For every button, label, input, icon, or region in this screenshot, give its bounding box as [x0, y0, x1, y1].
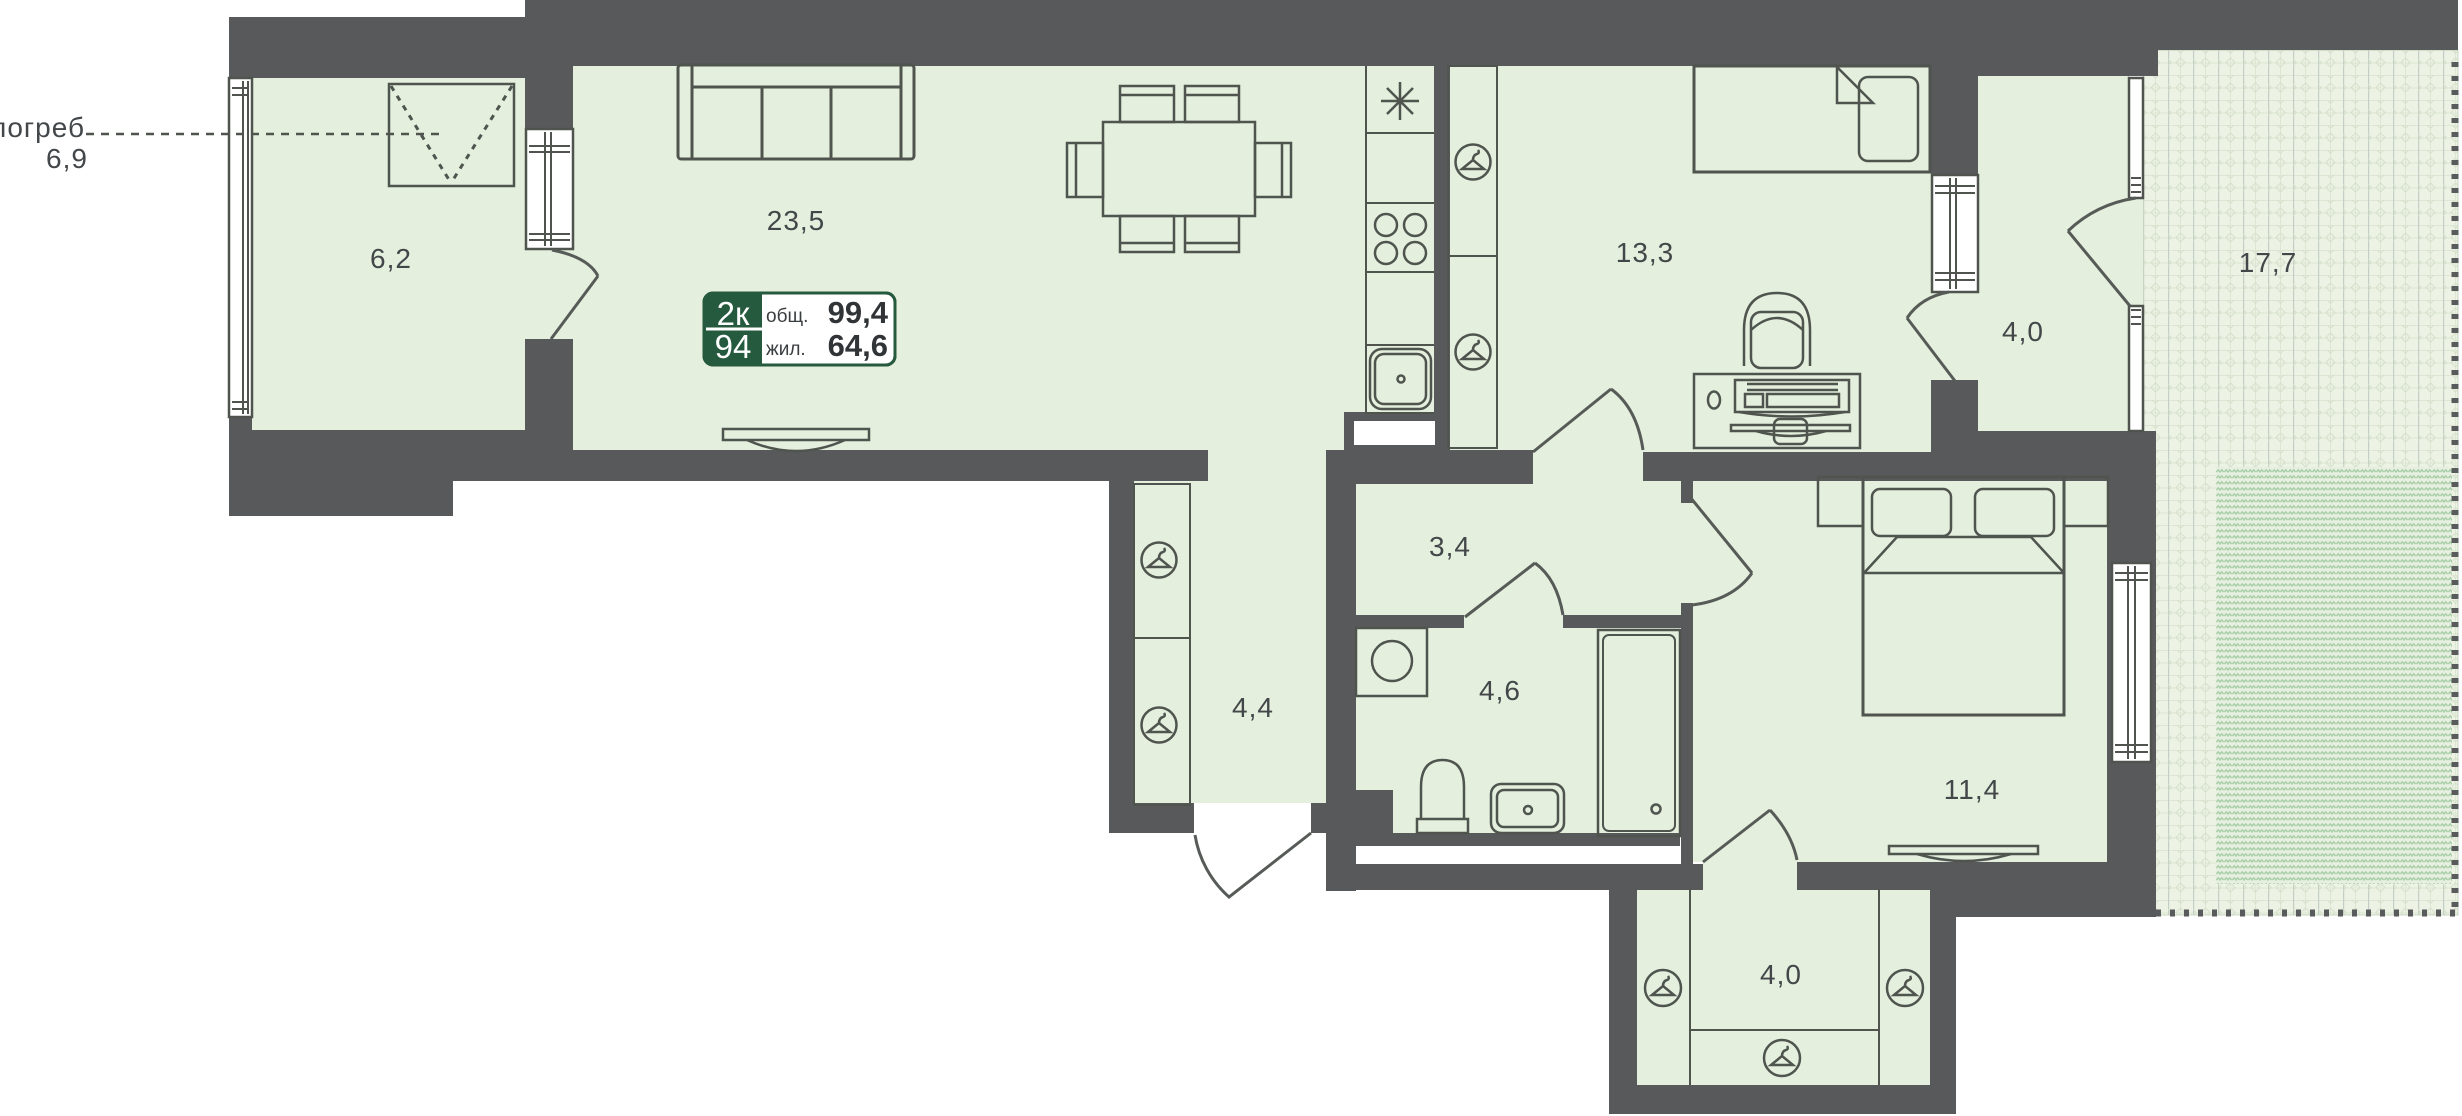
svg-text:4,0: 4,0 [2002, 316, 2044, 347]
svg-text:6,2: 6,2 [370, 243, 412, 274]
svg-text:погреб: погреб [0, 112, 85, 143]
svg-text:общ.: общ. [766, 306, 808, 327]
svg-text:23,5: 23,5 [767, 205, 826, 236]
svg-text:99,4: 99,4 [828, 295, 889, 330]
svg-text:4,0: 4,0 [1760, 959, 1802, 990]
svg-text:6,9: 6,9 [46, 143, 88, 174]
svg-text:17,7: 17,7 [2239, 247, 2298, 278]
svg-text:64,6: 64,6 [828, 328, 888, 363]
svg-text:94: 94 [715, 328, 752, 365]
svg-text:2к: 2к [717, 295, 750, 332]
svg-text:3,4: 3,4 [1429, 531, 1471, 562]
svg-text:4,6: 4,6 [1479, 675, 1521, 706]
svg-text:4,4: 4,4 [1232, 692, 1274, 723]
svg-text:жил.: жил. [766, 339, 806, 360]
svg-text:11,4: 11,4 [1944, 774, 2000, 805]
svg-text:13,3: 13,3 [1616, 237, 1675, 268]
